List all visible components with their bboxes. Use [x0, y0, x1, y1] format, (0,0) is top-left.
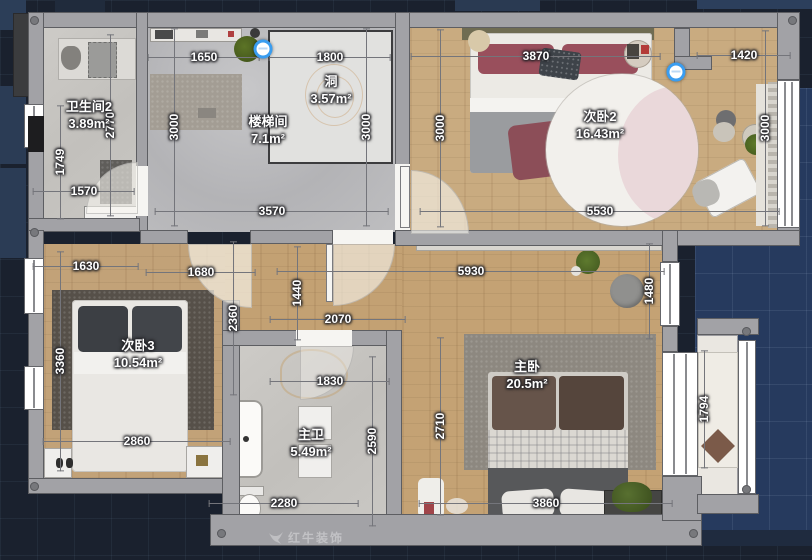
- dimension-label[interactable]: 2710: [433, 410, 447, 443]
- dimension-label[interactable]: 3360: [53, 345, 67, 378]
- room-label-bedroom3[interactable]: 次卧310.54m²: [114, 338, 162, 372]
- room-label-bathroom2[interactable]: 卫生间23.89m²: [66, 99, 112, 133]
- dimension-label[interactable]: 3000: [359, 111, 373, 144]
- dimension-label[interactable]: 3000: [167, 111, 181, 144]
- annotation-layer: 1650180038701420277030003000300030001749…: [0, 0, 812, 560]
- dimension-label[interactable]: 2070: [322, 312, 355, 326]
- dimension-label[interactable]: 2360: [226, 302, 240, 335]
- bull-logo-icon: [268, 531, 284, 545]
- dimension-label[interactable]: 1440: [290, 277, 304, 310]
- room-label-bedroom2[interactable]: 次卧216.43m²: [576, 109, 624, 143]
- dimension-label[interactable]: 2590: [365, 425, 379, 458]
- dimension-label[interactable]: 2280: [268, 496, 301, 510]
- selection-marker[interactable]: [667, 63, 686, 82]
- dimension-label[interactable]: 1830: [314, 374, 347, 388]
- dimension-label[interactable]: 1420: [728, 48, 761, 62]
- dimension-label[interactable]: 3570: [256, 204, 289, 218]
- watermark: 红牛装饰: [268, 529, 344, 546]
- selection-marker[interactable]: [254, 40, 273, 59]
- dimension-label[interactable]: 3870: [520, 49, 553, 63]
- dimension-label[interactable]: 3860: [530, 496, 563, 510]
- floorplan-canvas: 红牛装饰 16501800387014202770300030003000300…: [0, 0, 812, 560]
- dimension-label[interactable]: 3000: [433, 112, 447, 145]
- watermark-text: 红牛装饰: [288, 529, 344, 546]
- dimension-label[interactable]: 5530: [584, 204, 617, 218]
- dimension-label[interactable]: 1794: [697, 393, 711, 426]
- dimension-label[interactable]: 1680: [185, 265, 218, 279]
- room-label-master-bath[interactable]: 主卫5.49m²: [290, 427, 331, 461]
- dimension-label[interactable]: 3000: [758, 112, 772, 145]
- room-label-master-bedroom[interactable]: 主卧20.5m²: [506, 359, 547, 393]
- dimension-label[interactable]: 1570: [68, 184, 101, 198]
- dimension-label[interactable]: 2860: [121, 434, 154, 448]
- dimension-label[interactable]: 1650: [188, 50, 221, 64]
- dimension-label[interactable]: 1630: [70, 259, 103, 273]
- room-label-hole[interactable]: 洞3.57m²: [310, 74, 351, 108]
- dimension-label[interactable]: 1749: [53, 146, 67, 179]
- dimension-label[interactable]: 1800: [314, 50, 347, 64]
- room-label-stairwell[interactable]: 楼梯间7.1m²: [248, 114, 287, 148]
- dimension-label[interactable]: 5930: [455, 264, 488, 278]
- dimension-label[interactable]: 1480: [642, 275, 656, 308]
